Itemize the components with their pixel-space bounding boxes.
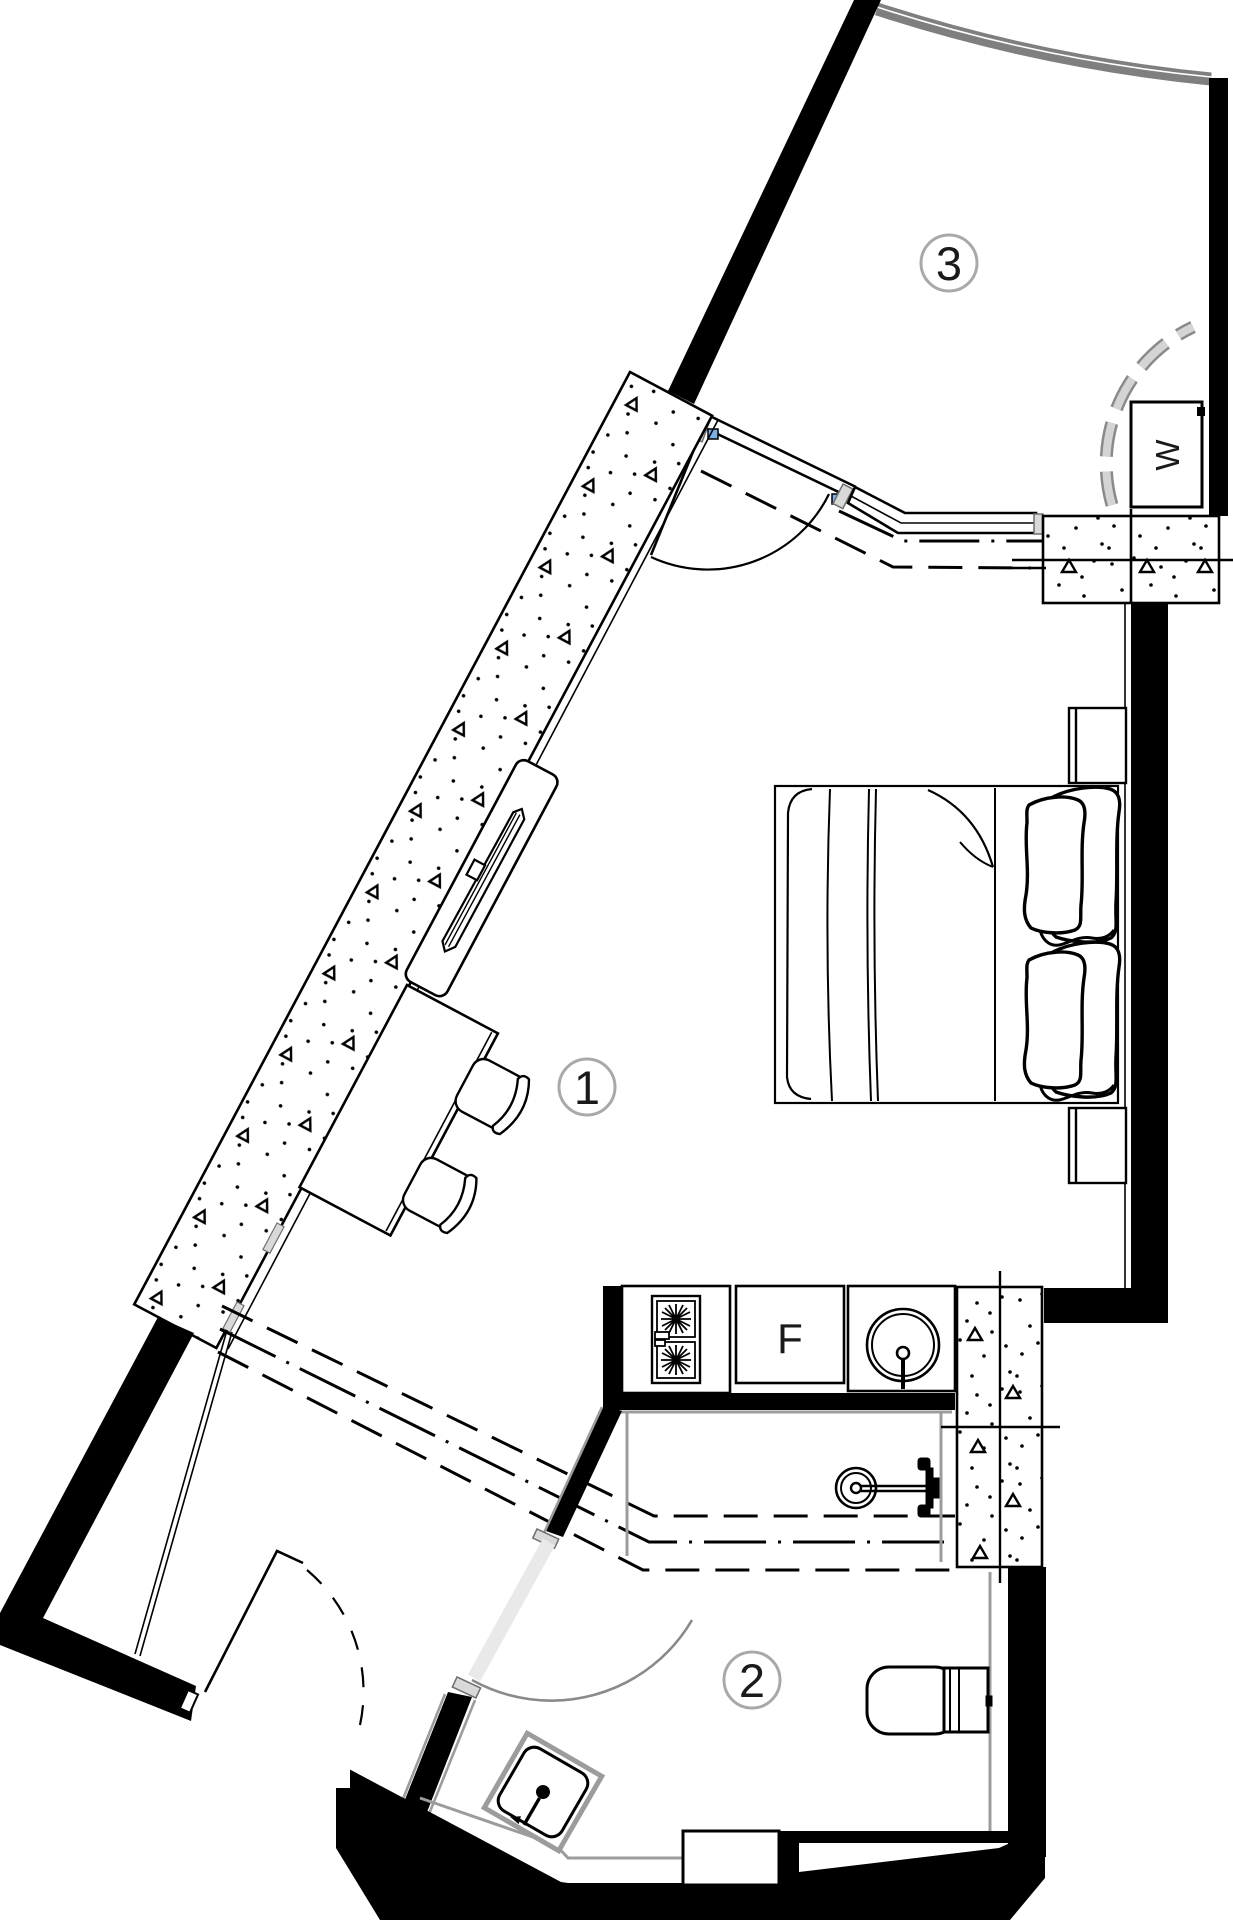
svg-text:1: 1 bbox=[574, 1061, 600, 1114]
svg-text:3: 3 bbox=[936, 237, 962, 290]
svg-text:2: 2 bbox=[739, 1654, 765, 1707]
svg-text:F: F bbox=[777, 1315, 803, 1362]
svg-text:W: W bbox=[1149, 439, 1186, 471]
